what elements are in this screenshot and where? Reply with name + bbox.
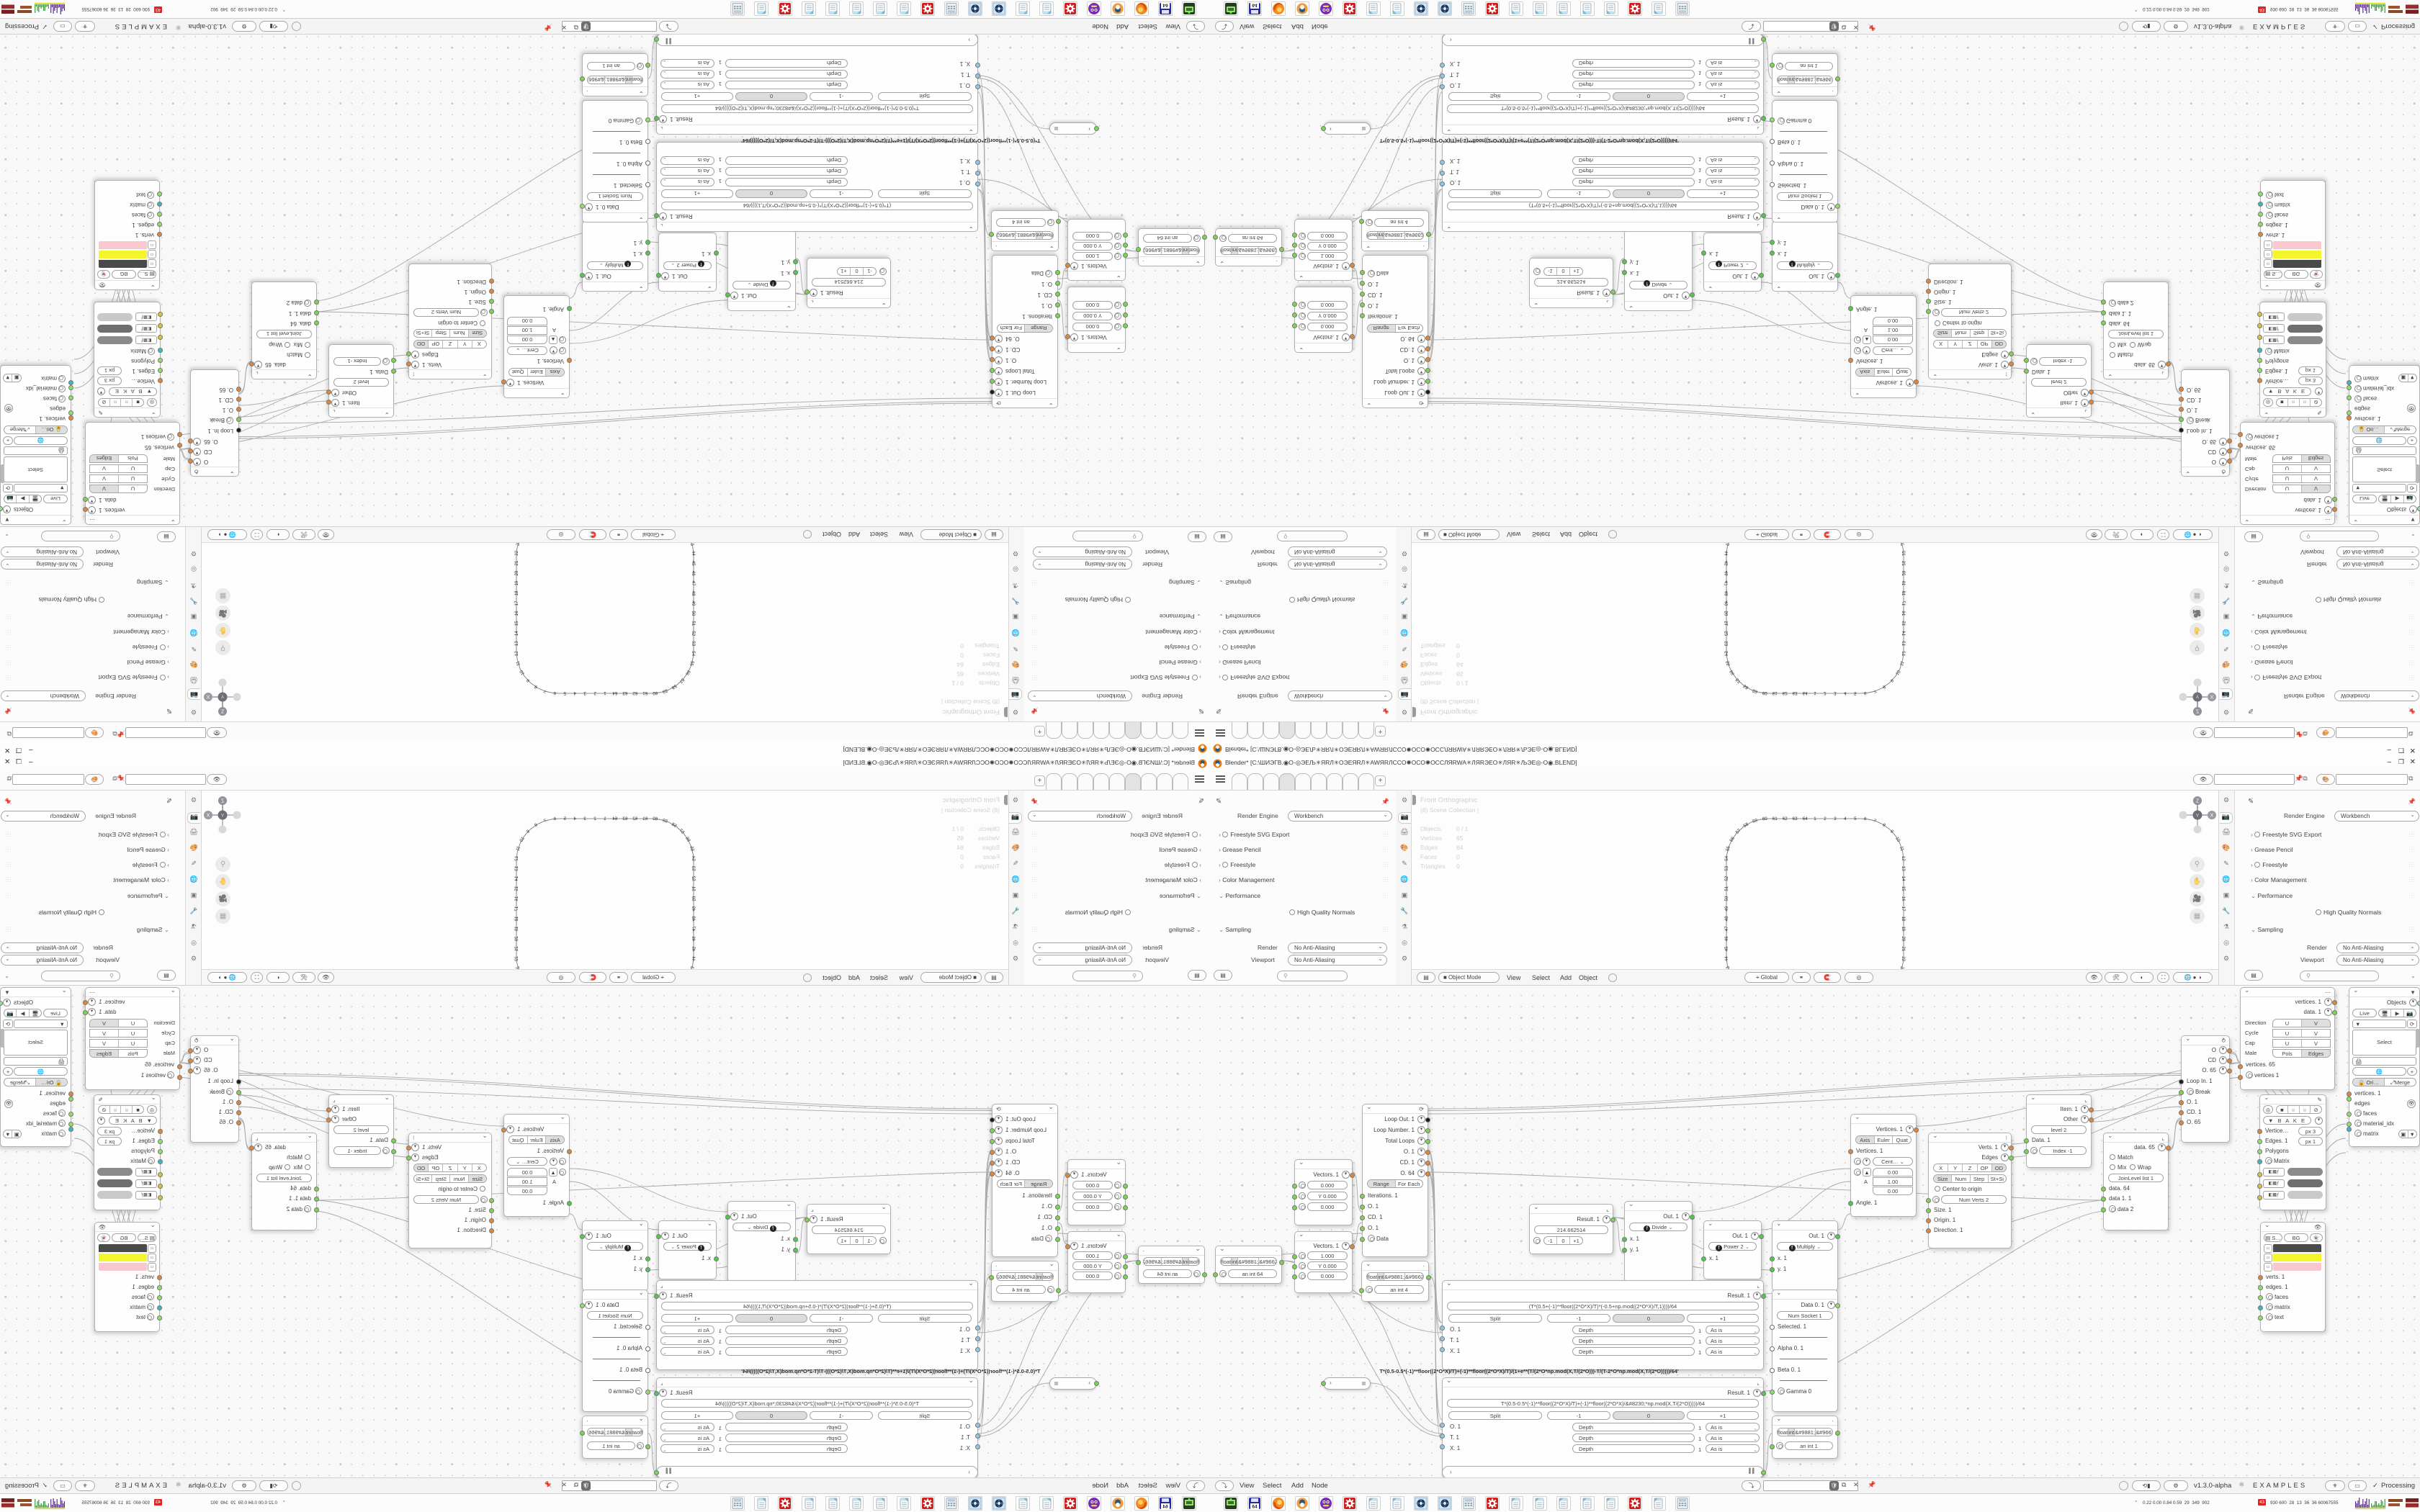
svg-text:54: 54 (1724, 855, 1729, 861)
svg-text:8: 8 (1881, 684, 1886, 690)
svg-text:64: 64 (1252, 3, 1258, 8)
svg-text:64: 64 (612, 816, 617, 822)
svg-text:46: 46 (1724, 936, 1729, 941)
svg-text:22: 22 (514, 956, 519, 962)
svg-text:14: 14 (1901, 876, 1906, 881)
svg-text:63: 63 (622, 690, 627, 696)
svg-text:49: 49 (691, 906, 696, 911)
svg-text:11: 11 (515, 660, 521, 667)
svg-text:19: 19 (514, 926, 519, 931)
svg-text:13: 13 (1901, 641, 1906, 646)
svg-text:13: 13 (514, 641, 519, 646)
svg-text:63: 63 (1793, 690, 1798, 696)
svg-text:56: 56 (684, 836, 691, 843)
svg-text:17: 17 (514, 600, 519, 606)
svg-text:7: 7 (1873, 818, 1877, 824)
svg-text:64: 64 (1803, 690, 1808, 696)
svg-text:12: 12 (1901, 856, 1906, 862)
svg-text:20: 20 (1901, 936, 1906, 941)
svg-text:55: 55 (1725, 845, 1731, 852)
svg-text:46: 46 (691, 936, 696, 941)
svg-text:53: 53 (691, 865, 696, 870)
svg-text:64: 64 (1803, 816, 1808, 822)
svg-text:47: 47 (1724, 926, 1729, 931)
svg-text:61: 61 (1773, 816, 1778, 822)
svg-text:10: 10 (519, 836, 526, 843)
svg-text:16: 16 (514, 611, 519, 616)
svg-text:55: 55 (689, 845, 695, 852)
svg-text:48: 48 (691, 591, 696, 596)
svg-text:45: 45 (691, 946, 696, 951)
svg-text:X: X (206, 694, 210, 699)
svg-text:49: 49 (1724, 906, 1729, 911)
svg-text:21: 21 (514, 560, 519, 565)
svg-text:51: 51 (1724, 621, 1729, 626)
svg-text:44: 44 (1724, 551, 1729, 557)
svg-text:53: 53 (1724, 865, 1729, 870)
svg-text:13: 13 (514, 866, 519, 871)
svg-text:Y: Y (220, 693, 224, 698)
svg-text:16: 16 (514, 896, 519, 901)
svg-text:21: 21 (1901, 946, 1906, 951)
svg-text:50: 50 (1724, 896, 1729, 901)
svg-text:10: 10 (519, 669, 526, 676)
svg-text:17: 17 (514, 906, 519, 912)
svg-text:3: 3 (1834, 816, 1837, 822)
svg-text:20: 20 (514, 936, 519, 941)
svg-text:45: 45 (1724, 561, 1729, 566)
svg-text:52: 52 (691, 876, 696, 881)
svg-text:10: 10 (1894, 669, 1901, 676)
svg-text:62: 62 (632, 816, 637, 822)
svg-text:18: 18 (514, 916, 519, 921)
svg-text:3: 3 (1834, 690, 1837, 696)
svg-text:60: 60 (652, 690, 658, 696)
svg-text:59: 59 (1752, 688, 1758, 694)
svg-text:1: 1 (1814, 816, 1816, 822)
svg-text:19: 19 (514, 580, 519, 585)
svg-text:8: 8 (1881, 822, 1886, 828)
svg-text:17: 17 (1901, 600, 1906, 606)
svg-text:Y: Y (220, 814, 224, 819)
svg-text:59: 59 (1752, 818, 1758, 824)
svg-text:54: 54 (691, 651, 696, 657)
svg-text:51: 51 (691, 886, 696, 891)
svg-text:22: 22 (1901, 550, 1906, 556)
svg-text:8: 8 (533, 684, 538, 690)
svg-text:12: 12 (1901, 651, 1906, 657)
svg-text:55: 55 (1725, 660, 1731, 667)
svg-text:54: 54 (1724, 651, 1729, 657)
svg-text:44: 44 (1724, 956, 1729, 962)
svg-text:51: 51 (691, 621, 696, 626)
svg-text:45: 45 (691, 561, 696, 566)
svg-text:X: X (2210, 694, 2214, 699)
svg-text:59: 59 (661, 818, 668, 824)
svg-text:55: 55 (689, 660, 695, 667)
svg-text:50: 50 (1724, 611, 1729, 616)
svg-text:13: 13 (1901, 866, 1906, 871)
svg-text:56: 56 (1729, 669, 1736, 676)
svg-text:2: 2 (1824, 816, 1827, 822)
svg-text:50: 50 (691, 896, 696, 901)
svg-text:54: 54 (691, 855, 696, 861)
svg-text:19: 19 (1901, 926, 1906, 931)
svg-text:5: 5 (563, 816, 566, 822)
svg-text:56: 56 (1729, 836, 1736, 843)
svg-text:7: 7 (543, 818, 547, 824)
svg-text:53: 53 (1724, 641, 1729, 646)
svg-text:64: 64 (1162, 3, 1168, 8)
svg-text:44: 44 (691, 956, 696, 962)
svg-text:Z: Z (2196, 799, 2200, 804)
svg-text:61: 61 (642, 816, 647, 822)
svg-text:Y: Y (2196, 693, 2200, 698)
svg-text:62: 62 (1783, 816, 1788, 822)
svg-text:20: 20 (514, 570, 519, 575)
svg-text:61: 61 (642, 690, 647, 696)
svg-text:48: 48 (1724, 916, 1729, 921)
svg-text:11: 11 (1899, 846, 1905, 852)
svg-text:5: 5 (1854, 816, 1857, 822)
svg-text:49: 49 (691, 601, 696, 606)
svg-text:1: 1 (604, 690, 606, 696)
svg-text:56: 56 (684, 669, 691, 676)
svg-text:15: 15 (1901, 621, 1906, 626)
svg-text:3: 3 (583, 816, 586, 822)
svg-text:52: 52 (1724, 631, 1729, 636)
svg-text:60: 60 (652, 816, 658, 822)
svg-text:7: 7 (1873, 688, 1877, 694)
svg-text:44: 44 (691, 551, 696, 557)
svg-text:1: 1 (1814, 690, 1816, 696)
svg-text:X: X (206, 814, 210, 819)
svg-text:58: 58 (671, 683, 678, 690)
svg-text:58: 58 (1742, 683, 1749, 690)
svg-text:47: 47 (1724, 581, 1729, 586)
svg-text:21: 21 (1901, 560, 1906, 565)
svg-text:21: 21 (514, 946, 519, 951)
svg-text:45: 45 (1724, 946, 1729, 951)
svg-text:Y: Y (2196, 814, 2200, 819)
svg-text:4: 4 (1844, 816, 1847, 822)
svg-text:2: 2 (593, 816, 596, 822)
svg-text:60: 60 (1762, 816, 1768, 822)
svg-text:49: 49 (1724, 601, 1729, 606)
svg-text:19: 19 (1901, 580, 1906, 585)
svg-text:X: X (2210, 814, 2214, 819)
svg-text:12: 12 (514, 651, 519, 657)
svg-text:46: 46 (1724, 571, 1729, 576)
svg-text:4: 4 (573, 816, 576, 822)
svg-text:50: 50 (691, 611, 696, 616)
svg-text:64: 64 (1252, 1505, 1258, 1510)
svg-text:58: 58 (671, 822, 678, 829)
svg-text:22: 22 (1901, 956, 1906, 962)
svg-text:2: 2 (593, 690, 596, 696)
svg-text:51: 51 (1724, 886, 1729, 891)
svg-text:14: 14 (514, 631, 519, 636)
svg-text:59: 59 (661, 688, 668, 694)
svg-text:61: 61 (1773, 690, 1778, 696)
svg-text:62: 62 (1783, 690, 1788, 696)
svg-text:14: 14 (1901, 631, 1906, 636)
svg-text:22: 22 (514, 550, 519, 556)
svg-text:7: 7 (543, 688, 547, 694)
svg-text:18: 18 (1901, 916, 1906, 921)
svg-text:Z: Z (220, 799, 224, 804)
svg-text:46: 46 (691, 571, 696, 576)
svg-text:10: 10 (1894, 836, 1901, 843)
svg-text:48: 48 (691, 916, 696, 921)
svg-text:2: 2 (1824, 690, 1827, 696)
svg-text:60: 60 (1762, 690, 1768, 696)
svg-text:17: 17 (1901, 906, 1906, 912)
svg-text:4: 4 (573, 690, 576, 696)
svg-text:11: 11 (515, 846, 521, 852)
svg-text:15: 15 (514, 621, 519, 626)
svg-text:15: 15 (1901, 886, 1906, 891)
svg-text:52: 52 (1724, 876, 1729, 881)
svg-text:5: 5 (1854, 690, 1857, 696)
svg-text:53: 53 (691, 641, 696, 646)
svg-text:3: 3 (583, 690, 586, 696)
svg-text:11: 11 (1899, 660, 1905, 667)
svg-text:20: 20 (1901, 570, 1906, 575)
svg-text:Z: Z (2196, 708, 2200, 714)
svg-text:62: 62 (632, 690, 637, 696)
svg-text:8: 8 (533, 822, 538, 828)
svg-text:14: 14 (514, 876, 519, 881)
svg-text:64: 64 (612, 690, 617, 696)
svg-text:15: 15 (514, 886, 519, 891)
svg-text:Z: Z (220, 708, 224, 714)
svg-text:52: 52 (691, 631, 696, 636)
svg-text:18: 18 (514, 590, 519, 595)
svg-text:16: 16 (1901, 896, 1906, 901)
svg-text:58: 58 (1742, 822, 1749, 829)
svg-text:18: 18 (1901, 590, 1906, 595)
svg-text:48: 48 (1724, 591, 1729, 596)
svg-text:5: 5 (563, 690, 566, 696)
svg-text:64: 64 (1162, 1505, 1168, 1510)
svg-text:47: 47 (691, 581, 696, 586)
svg-text:63: 63 (622, 816, 627, 822)
svg-text:47: 47 (691, 926, 696, 931)
svg-text:4: 4 (1844, 690, 1847, 696)
svg-text:1: 1 (604, 816, 606, 822)
svg-text:16: 16 (1901, 611, 1906, 616)
svg-text:12: 12 (514, 856, 519, 862)
svg-text:63: 63 (1793, 816, 1798, 822)
